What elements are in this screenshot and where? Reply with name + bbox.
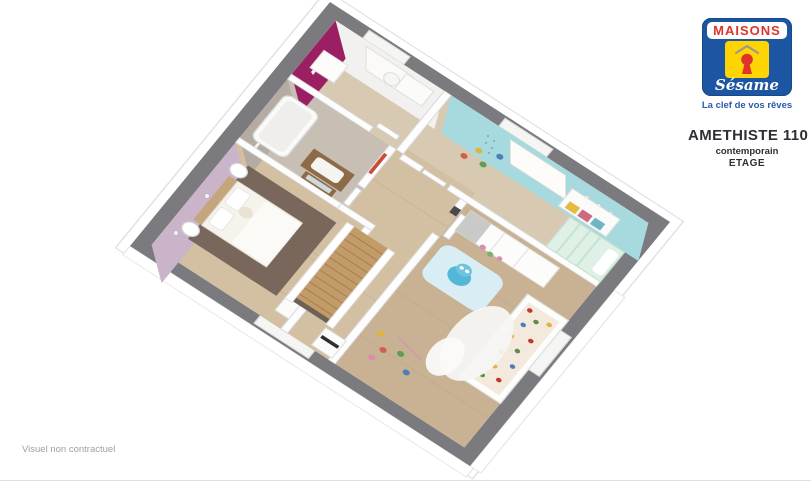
logo-top-band: MAISONS: [707, 22, 787, 39]
model-style: contemporain: [688, 146, 806, 157]
model-name: AMETHISTE 110: [688, 127, 806, 144]
maisons-sesame-logo: MAISONS Sésame: [702, 18, 792, 96]
disclaimer-text: Visuel non contractuel: [22, 444, 115, 455]
model-block: AMETHISTE 110 contemporain ETAGE: [688, 127, 806, 169]
brand-column: MAISONS Sésame La clef de vos rêves AMET…: [688, 18, 806, 169]
logo-sesame-text: Sésame: [702, 76, 792, 94]
sconce-light: [205, 194, 210, 199]
sconce-light: [174, 231, 179, 236]
keyhole-icon-svg: [727, 43, 767, 77]
keyhole-in-house-icon: [725, 41, 769, 78]
flyer-canvas: { "branding": { "name_top": "MAISONS", "…: [0, 0, 811, 481]
logo-tagline: La clef de vos rêves: [688, 100, 806, 111]
logo-maisons-text: MAISONS: [713, 23, 781, 38]
model-level: ETAGE: [688, 158, 806, 169]
